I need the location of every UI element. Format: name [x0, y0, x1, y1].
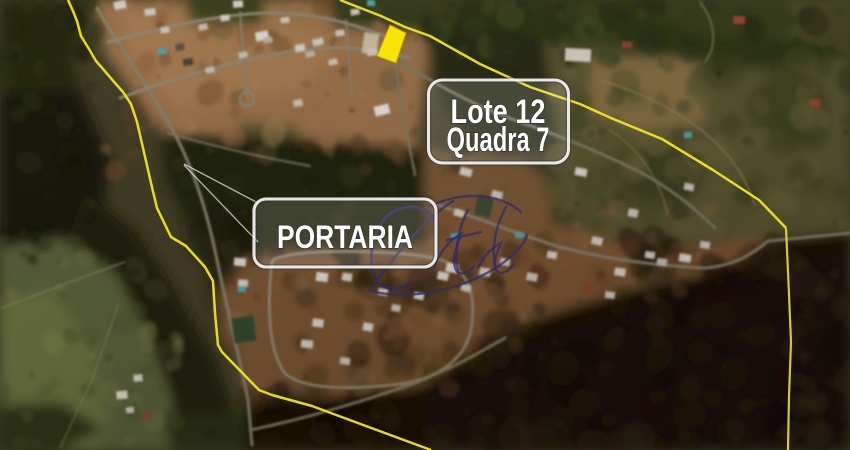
svg-text:PORTARIA: PORTARIA [277, 219, 413, 255]
svg-text:Quadra 7: Quadra 7 [447, 121, 550, 159]
